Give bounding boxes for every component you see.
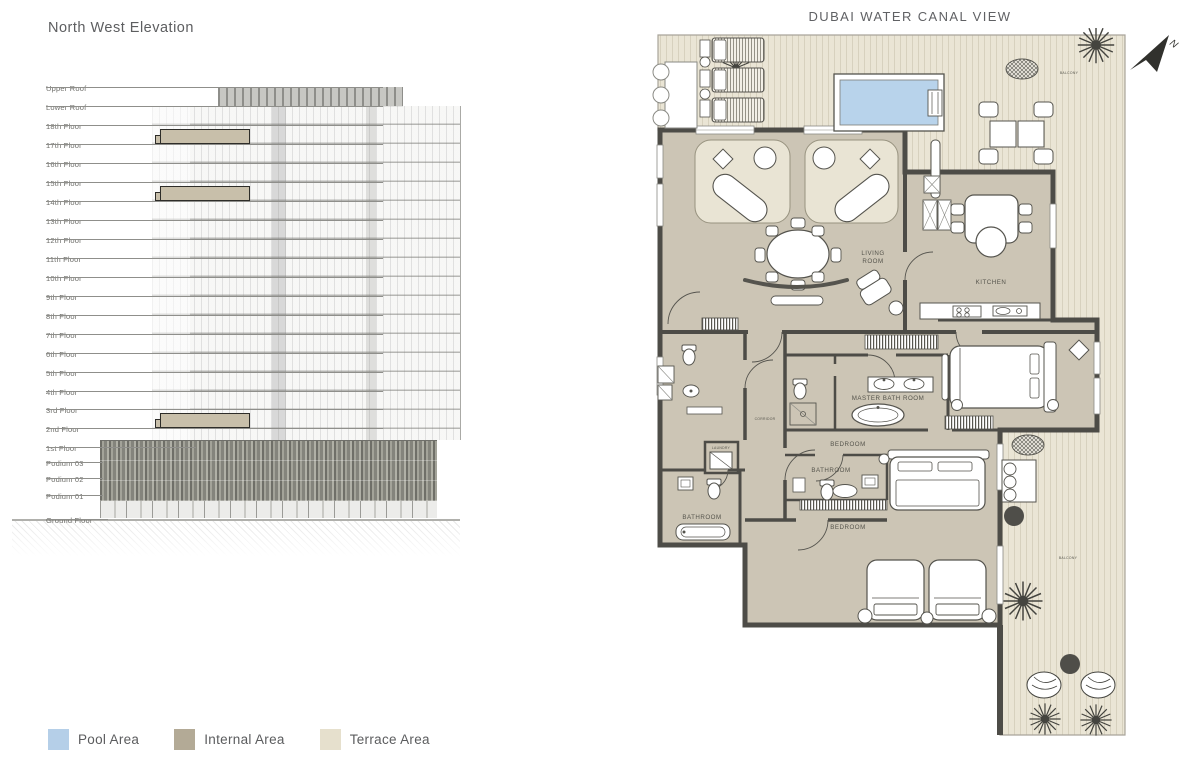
legend-label: Internal Area bbox=[204, 732, 284, 747]
floor-leader-line bbox=[46, 296, 383, 297]
page: North West Elevation Upper RoofLower Roo… bbox=[0, 0, 1200, 762]
floor-label: 5th Floor bbox=[46, 369, 77, 378]
highlighted-unit-block bbox=[155, 186, 250, 201]
floor-row: Upper Roof bbox=[46, 78, 86, 88]
floor-label: 2nd Floor bbox=[46, 425, 80, 434]
floor-label: 8th Floor bbox=[46, 312, 77, 321]
floor-leader-line bbox=[46, 391, 383, 392]
floor-leader-line bbox=[46, 409, 383, 410]
legend-item-terrace: Terrace Area bbox=[320, 729, 430, 750]
legend-item-internal: Internal Area bbox=[174, 729, 284, 750]
floor-row: Lower Roof bbox=[46, 97, 86, 107]
pool-area-swatch bbox=[48, 729, 69, 750]
legend-item-pool: Pool Area bbox=[48, 729, 139, 750]
terrace-area-swatch bbox=[320, 729, 341, 750]
floor-label: 11th Floor bbox=[46, 255, 81, 264]
highlighted-unit-block bbox=[155, 413, 250, 428]
internal-area-swatch bbox=[174, 729, 195, 750]
floor-leader-line bbox=[46, 372, 383, 373]
floor-label: Podium 01 bbox=[46, 492, 84, 501]
floor-row: Ground Floor bbox=[46, 510, 93, 520]
floor-leader-line bbox=[46, 106, 383, 107]
floor-label: 7th Floor bbox=[46, 331, 77, 340]
floor-leader-line bbox=[46, 478, 103, 479]
floor-leader-line bbox=[46, 315, 383, 316]
floor-leader-line bbox=[46, 125, 383, 126]
floor-label: Podium 03 bbox=[46, 459, 84, 468]
floor-row: 13th Floor bbox=[46, 211, 82, 221]
floor-row: Podium 02 bbox=[46, 469, 84, 479]
legend-label: Pool Area bbox=[78, 732, 139, 747]
floor-label: 18th Floor bbox=[46, 122, 82, 131]
floor-label: Upper Roof bbox=[46, 84, 86, 93]
floor-row: 11th Floor bbox=[46, 249, 81, 259]
floor-label: 13th Floor bbox=[46, 217, 82, 226]
legend-label: Terrace Area bbox=[350, 732, 430, 747]
floor-row: 16th Floor bbox=[46, 154, 82, 164]
floor-label: 14th Floor bbox=[46, 198, 82, 207]
legend: Pool Area Internal Area Terrace Area bbox=[48, 729, 430, 750]
floor-leader-line bbox=[46, 334, 383, 335]
floor-label: 6th Floor bbox=[46, 350, 77, 359]
floor-row: 9th Floor bbox=[46, 287, 77, 297]
floor-leader-line bbox=[46, 258, 383, 259]
floor-row: 7th Floor bbox=[46, 325, 77, 335]
floor-row: 12th Floor bbox=[46, 230, 82, 240]
floor-leader-line bbox=[46, 353, 383, 354]
floor-label: 10th Floor bbox=[46, 274, 82, 283]
floor-leader-line bbox=[46, 519, 108, 520]
highlighted-unit-block bbox=[155, 129, 250, 144]
floor-list: Upper RoofLower Roof18th Floor17th Floor… bbox=[0, 0, 1200, 762]
floor-row: 17th Floor bbox=[46, 135, 82, 145]
floor-leader-line bbox=[46, 495, 103, 496]
floor-leader-line bbox=[46, 462, 103, 463]
floor-row: 3rd Floor bbox=[46, 400, 78, 410]
floor-label: Lower Roof bbox=[46, 103, 86, 112]
floor-leader-line bbox=[46, 163, 383, 164]
floor-label: Ground Floor bbox=[46, 516, 93, 525]
floor-label: 1st Floor bbox=[46, 444, 77, 453]
floor-label: 15th Floor bbox=[46, 179, 82, 188]
floor-leader-line bbox=[46, 144, 383, 145]
floor-row: Podium 03 bbox=[46, 453, 84, 463]
floor-row: 6th Floor bbox=[46, 344, 77, 354]
floor-leader-line bbox=[46, 239, 383, 240]
floor-leader-line bbox=[46, 182, 383, 183]
floor-leader-line bbox=[46, 277, 383, 278]
floor-label: 17th Floor bbox=[46, 141, 82, 150]
floor-row: 5th Floor bbox=[46, 363, 77, 373]
floor-row: 1st Floor bbox=[46, 438, 77, 448]
floor-label: 3rd Floor bbox=[46, 406, 78, 415]
floor-label: Podium 02 bbox=[46, 475, 84, 484]
floor-leader-line bbox=[46, 428, 383, 429]
floor-row: 18th Floor bbox=[46, 116, 82, 126]
floor-leader-line bbox=[46, 87, 383, 88]
floor-label: 12th Floor bbox=[46, 236, 82, 245]
floor-row: 15th Floor bbox=[46, 173, 82, 183]
floor-leader-line bbox=[46, 447, 196, 448]
floor-label: 9th Floor bbox=[46, 293, 77, 302]
floor-label: 16th Floor bbox=[46, 160, 82, 169]
floor-row: 2nd Floor bbox=[46, 419, 80, 429]
floor-label: 4th Floor bbox=[46, 388, 77, 397]
floor-row: Podium 01 bbox=[46, 486, 84, 496]
floor-row: 10th Floor bbox=[46, 268, 82, 278]
floor-leader-line bbox=[46, 220, 383, 221]
floor-row: 8th Floor bbox=[46, 306, 77, 316]
floor-row: 4th Floor bbox=[46, 382, 77, 392]
floor-row: 14th Floor bbox=[46, 192, 82, 202]
floor-leader-line bbox=[46, 201, 383, 202]
